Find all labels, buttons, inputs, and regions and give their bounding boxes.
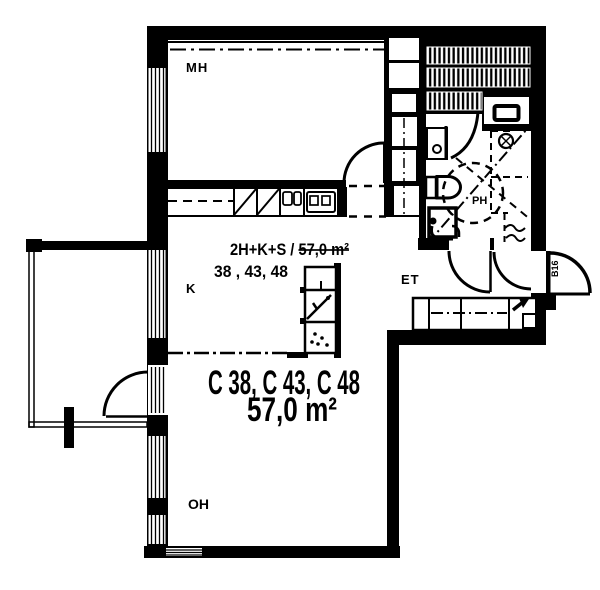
- svg-text:PH: PH: [472, 195, 487, 207]
- svg-text:57,0 m²: 57,0 m²: [247, 391, 337, 429]
- svg-text:ET: ET: [401, 272, 420, 287]
- svg-text:MH: MH: [186, 60, 208, 75]
- svg-text:K: K: [186, 281, 196, 296]
- svg-text:B16: B16: [550, 260, 560, 277]
- svg-text:OH: OH: [188, 496, 209, 512]
- svg-text:2H+K+S / 57,0 m²: 2H+K+S / 57,0 m²: [230, 240, 349, 259]
- svg-text:38 , 43, 48: 38 , 43, 48: [214, 262, 288, 281]
